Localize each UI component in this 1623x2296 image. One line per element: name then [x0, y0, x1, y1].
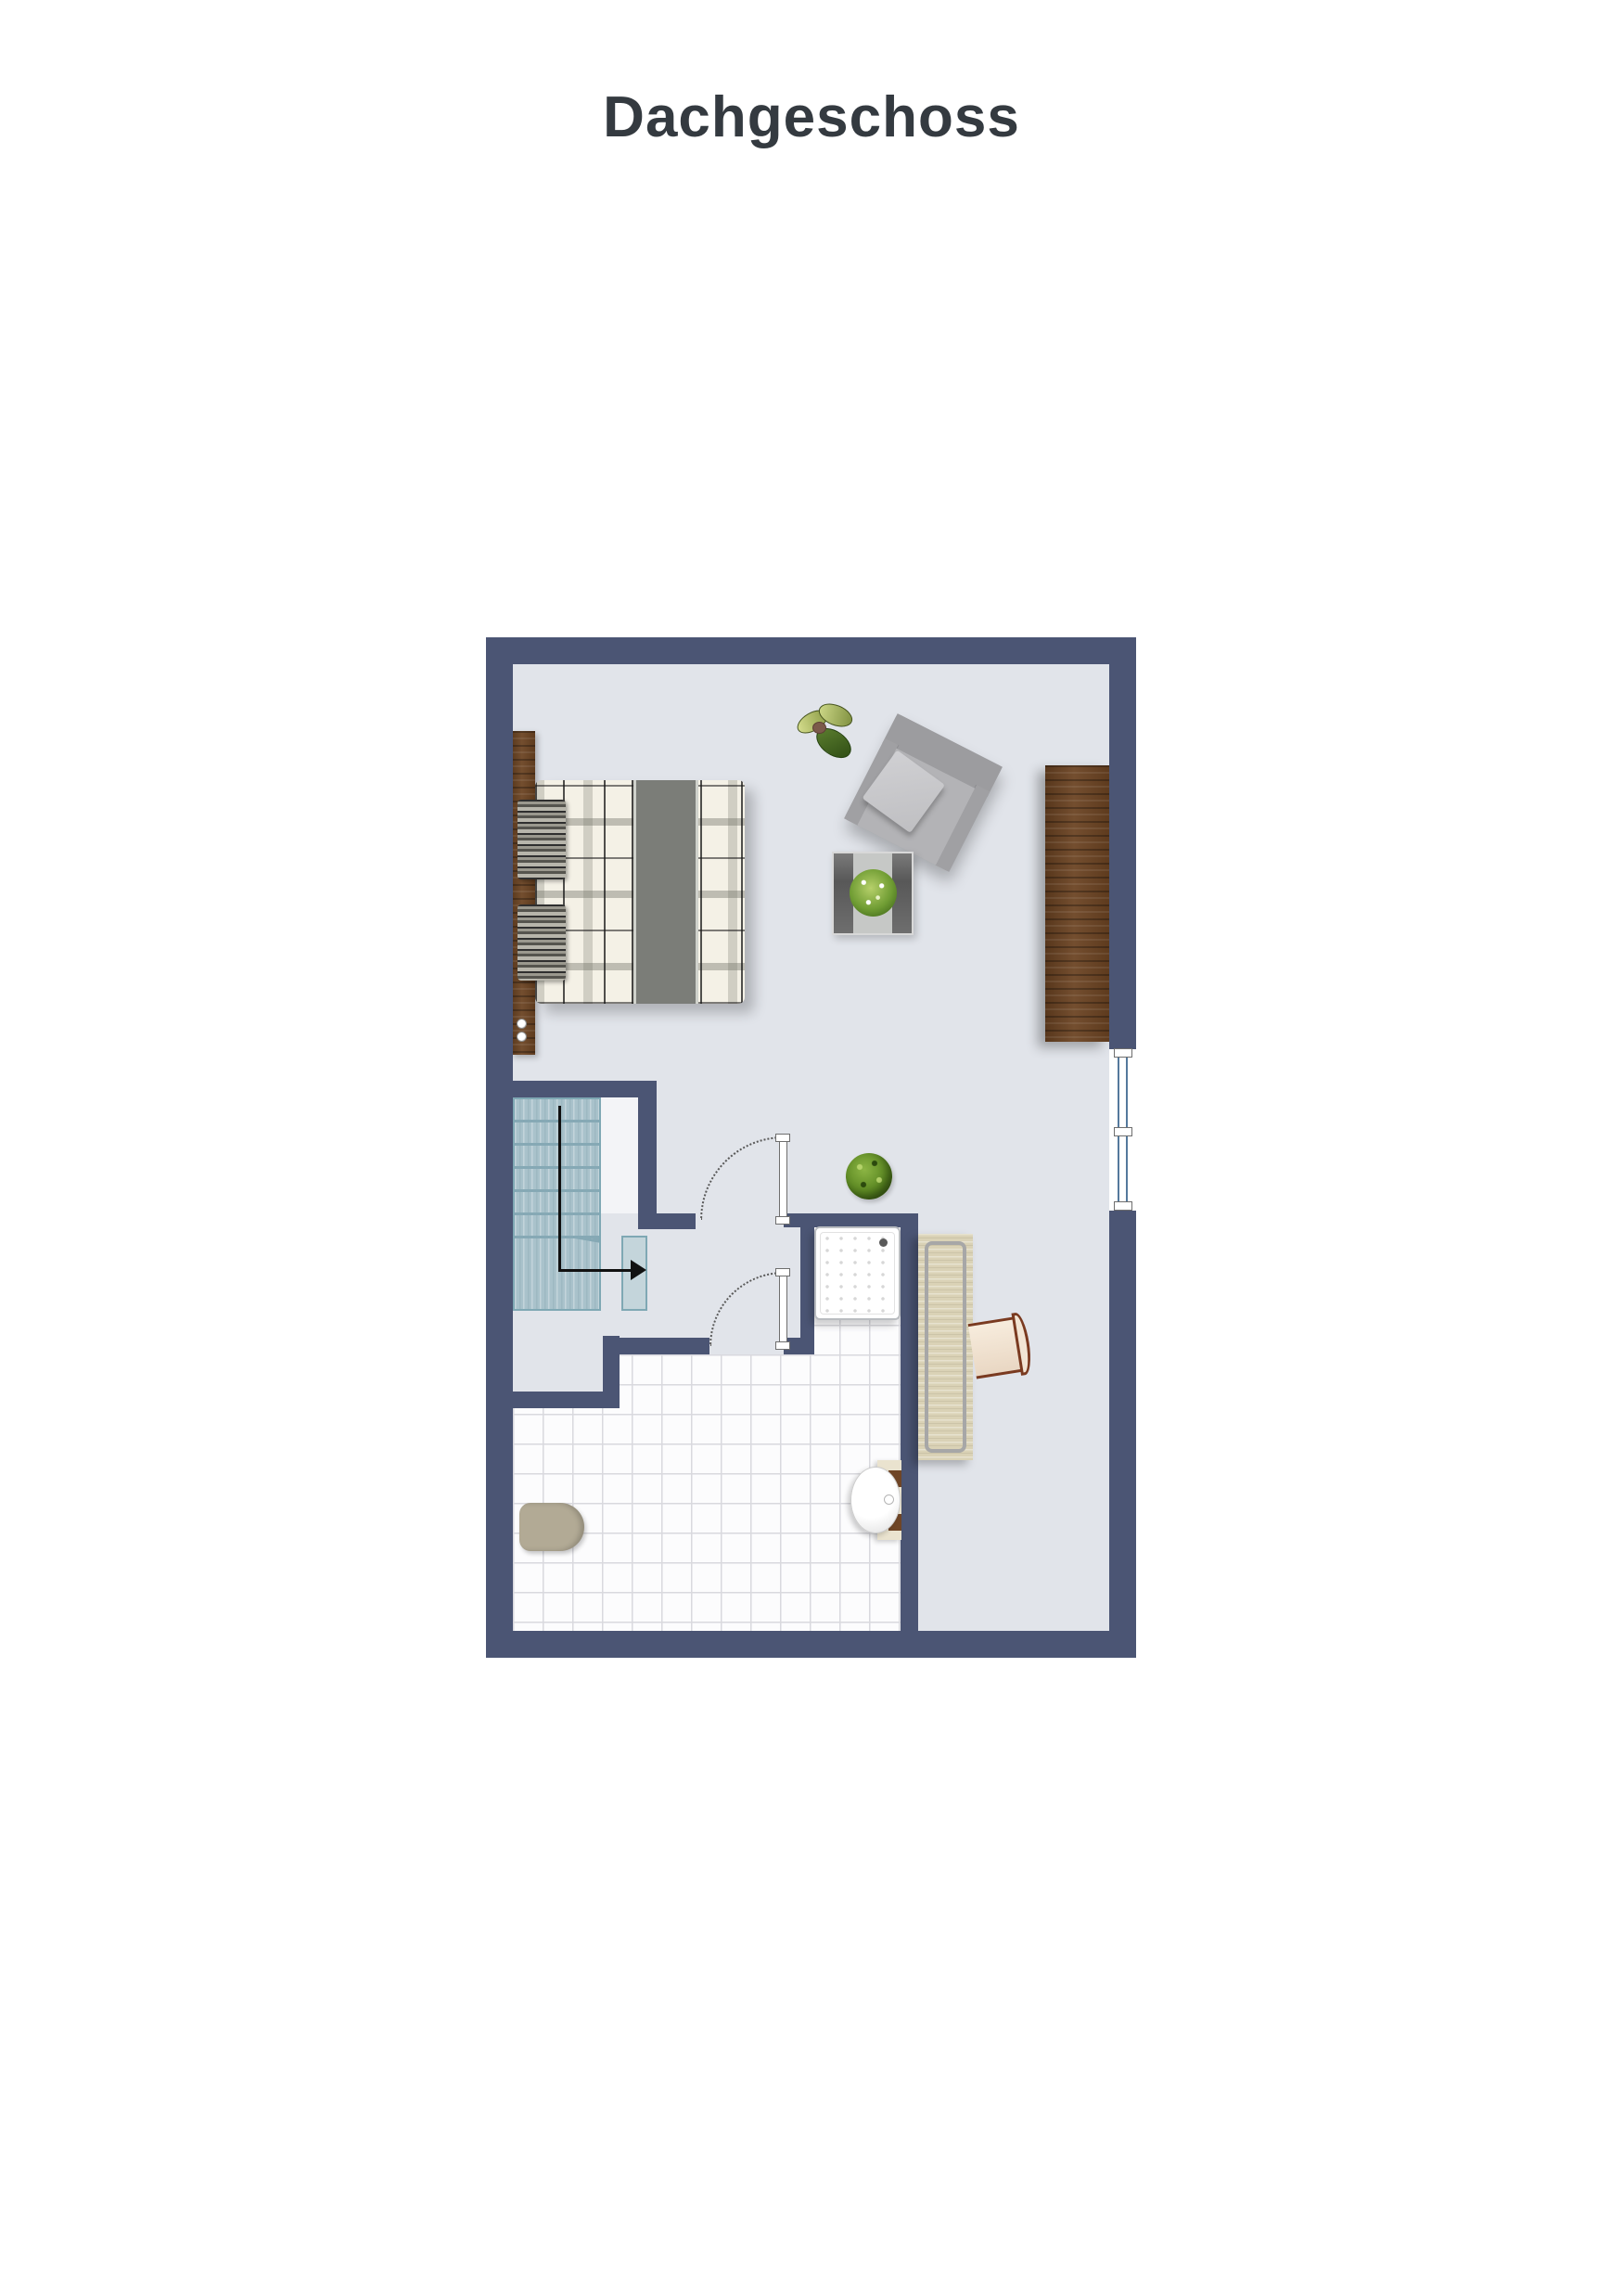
outer-wall-top [486, 637, 1136, 664]
door-leaf-lower [779, 1271, 787, 1347]
outer-wall-bottom [486, 1631, 1136, 1658]
toilet [519, 1503, 584, 1551]
wall-shower-left [800, 1226, 814, 1354]
wall-hall-jut [638, 1213, 696, 1229]
wall-stair-right [638, 1097, 657, 1217]
window-handle-middle [1114, 1127, 1132, 1136]
wardrobe [1045, 765, 1109, 1042]
window-handle-bottom [1114, 1201, 1132, 1211]
window-handle-top [1114, 1048, 1132, 1058]
wall-bathroom-right [901, 1226, 918, 1632]
plant-large [796, 705, 857, 766]
shower-drain [879, 1238, 888, 1247]
wall-shower-niche-top [784, 1213, 918, 1227]
page-title: Dachgeschoss [0, 89, 1623, 147]
stair-winder-treads [515, 1238, 599, 1309]
table-plant [850, 869, 897, 917]
stair-arrow-line-vertical [558, 1106, 561, 1272]
door-leaf-upper [779, 1136, 787, 1222]
floorplan-dachgeschoss [486, 637, 1136, 1658]
bed-pillow-top [518, 800, 566, 879]
stair-arrow-head [631, 1260, 646, 1280]
bed-pillow-bottom [518, 904, 566, 981]
outer-wall-left [486, 637, 513, 1658]
outer-wall-right-upper [1109, 637, 1136, 1049]
stair-void [601, 1097, 638, 1213]
outer-wall-right-lower [1109, 1211, 1136, 1658]
plant-bush [846, 1153, 892, 1199]
bench-table [918, 1234, 973, 1460]
stair-treads [515, 1099, 599, 1238]
shower [814, 1226, 901, 1320]
staircase [513, 1097, 601, 1311]
sink-faucet [884, 1494, 894, 1505]
bed-headboard [511, 731, 535, 1055]
bed-runner [633, 780, 698, 1004]
bed-knob-bottom [517, 1032, 527, 1042]
bed-knob-top [517, 1019, 527, 1029]
chair [967, 1312, 1034, 1383]
bed [535, 780, 745, 1004]
coffee-table [832, 852, 914, 935]
stair-arrow-line-horizontal [558, 1269, 633, 1272]
